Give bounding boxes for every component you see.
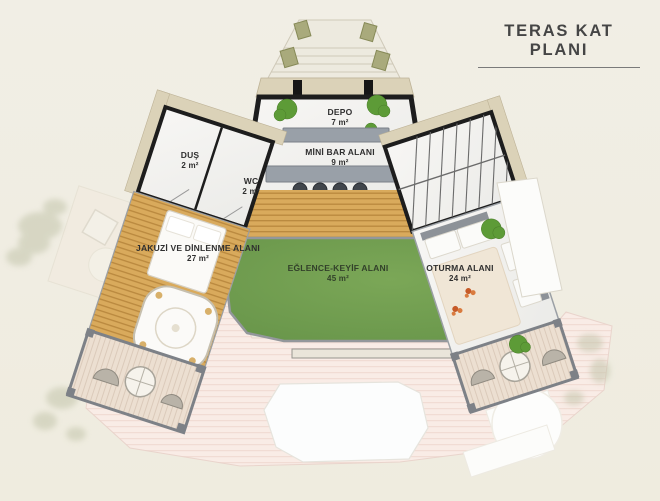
page-title: TERAS KAT PLANI: [478, 22, 640, 68]
floor-plan-canvas: [0, 0, 660, 501]
bar-counter: [283, 128, 389, 142]
pool: [264, 382, 428, 462]
bar-counter: [266, 166, 406, 182]
entry-steps: [268, 20, 400, 78]
